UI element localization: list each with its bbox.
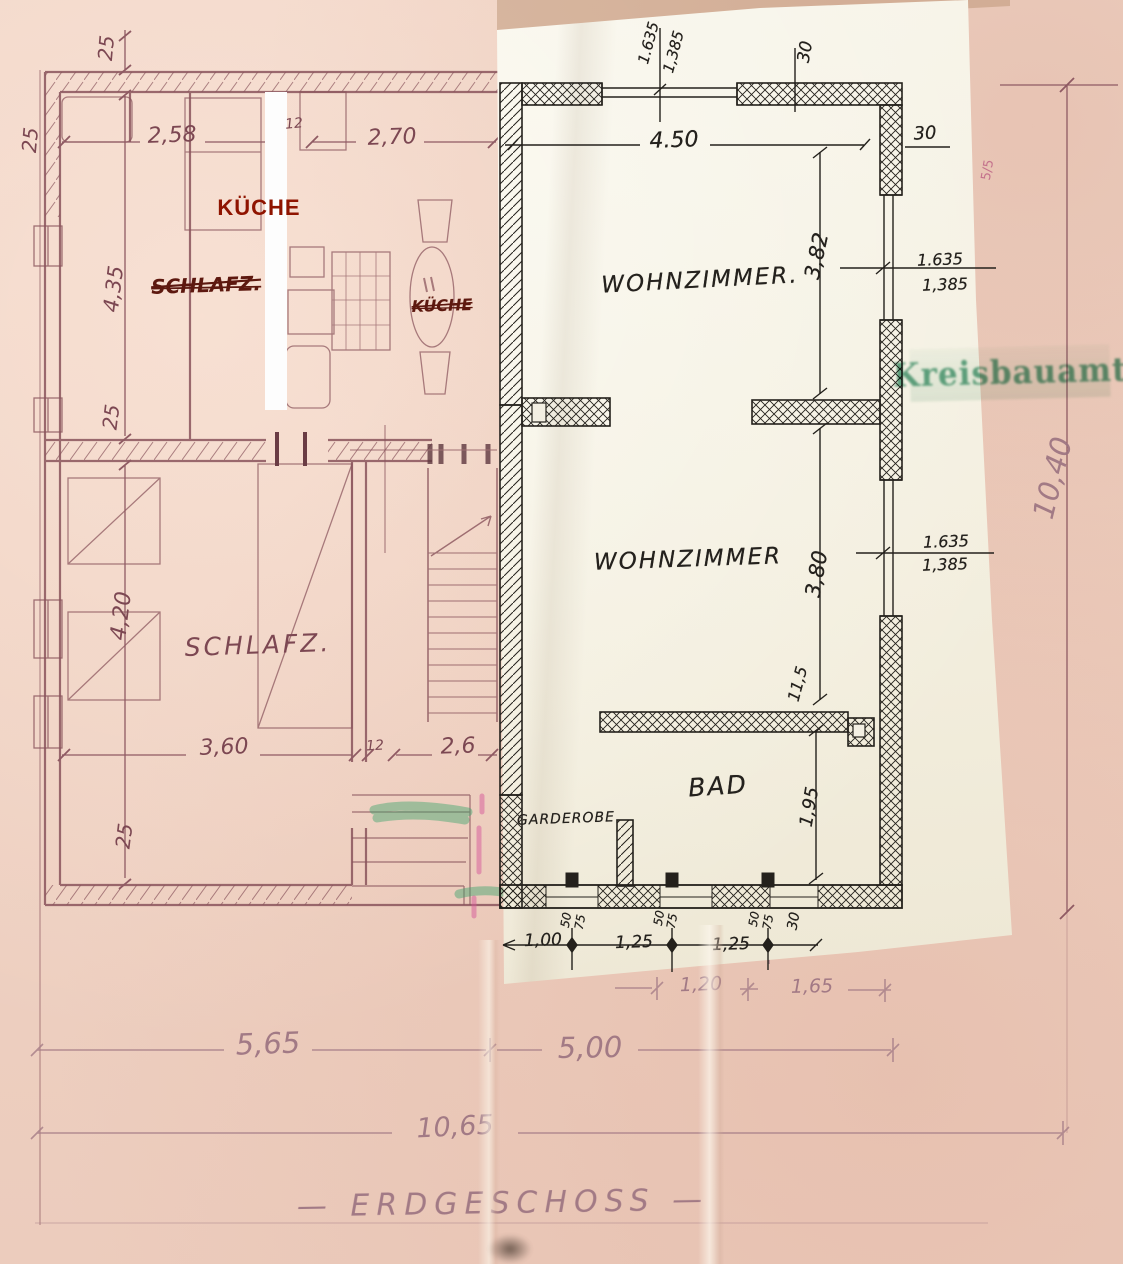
dim-50-c: 50 bbox=[747, 910, 761, 927]
overlay-dimension-lines bbox=[503, 28, 996, 972]
dim-30-bottom: 30 bbox=[786, 911, 803, 931]
dim-30-top: 30 bbox=[796, 40, 816, 64]
dim-1-25-a: 1,25 bbox=[615, 934, 653, 952]
dim-75-c: 75 bbox=[761, 913, 775, 930]
kreisbauamt-stamp: Kreisbauamt bbox=[909, 344, 1110, 402]
dim-1-385-r1: 1,385 bbox=[922, 276, 968, 294]
dim-1-635-r1: 1.635 bbox=[917, 251, 963, 269]
overlay-floor-plan-drawing bbox=[0, 0, 1123, 1264]
room-label-garderobe: GARDEROBE bbox=[517, 810, 615, 827]
scanned-floor-plan: KÜCHE — ERDGESCHOSS — 25252,58122,70SCHL… bbox=[0, 0, 1123, 1264]
edge-smudge bbox=[488, 1234, 532, 1264]
paper-crease bbox=[698, 925, 724, 1264]
dim-1-00: 1,00 bbox=[524, 932, 562, 950]
dim-1-385-r2: 1,385 bbox=[922, 556, 968, 574]
dim-75-b: 75 bbox=[665, 912, 679, 929]
dim-30-corner: 30 bbox=[913, 124, 937, 143]
paper-crease bbox=[478, 940, 500, 1264]
dim-1-635-r2: 1.635 bbox=[923, 533, 969, 551]
room-label-bad: BAD bbox=[687, 771, 748, 800]
overlay-bottom-wall bbox=[500, 873, 902, 908]
dim-4-50: 4.50 bbox=[649, 129, 699, 153]
dim-75-a: 75 bbox=[573, 913, 587, 930]
